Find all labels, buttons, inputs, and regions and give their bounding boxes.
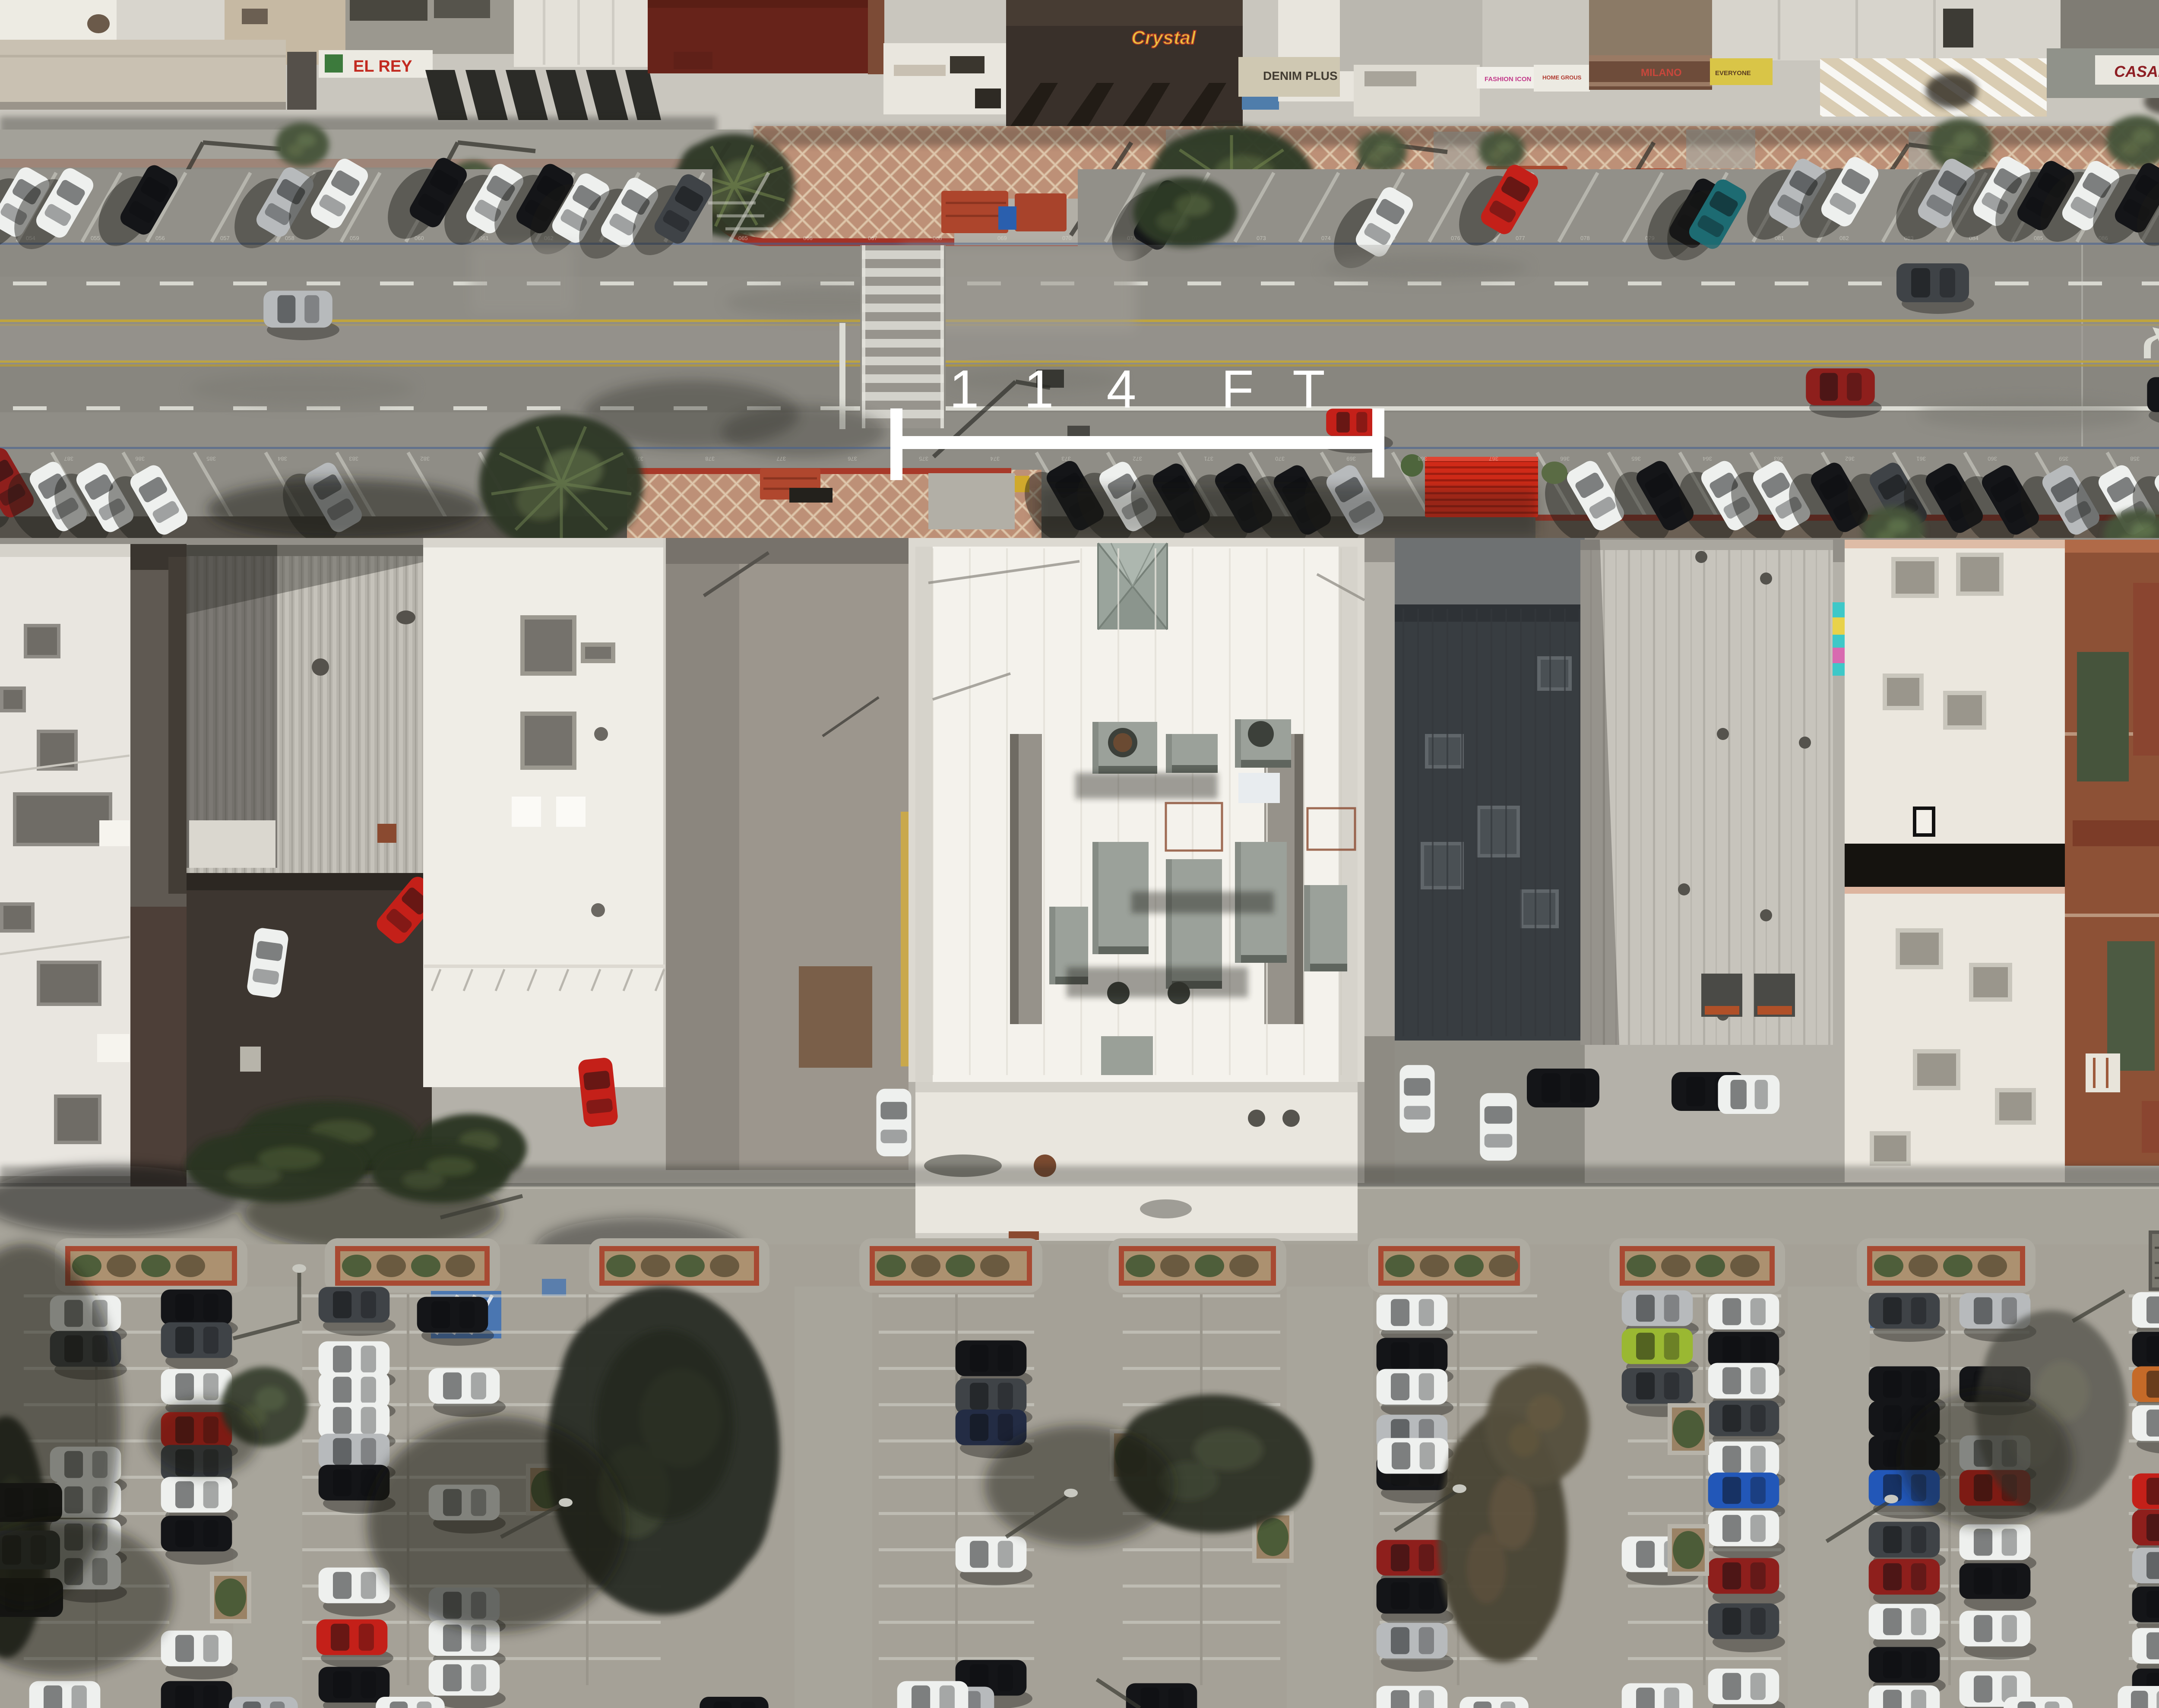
svg-text:DENIM PLUS: DENIM PLUS xyxy=(1263,69,1338,82)
svg-text:056: 056 xyxy=(155,235,165,241)
svg-text:058: 058 xyxy=(285,235,294,241)
svg-text:MILANO: MILANO xyxy=(1641,67,1682,79)
svg-text:F: F xyxy=(1221,360,1254,419)
svg-text:384: 384 xyxy=(278,455,287,462)
svg-text:372: 372 xyxy=(1133,455,1142,462)
svg-text:FASHION ICON: FASHION ICON xyxy=(1485,76,1531,83)
svg-text:073: 073 xyxy=(1257,235,1266,241)
svg-text:077: 077 xyxy=(1516,235,1525,241)
svg-text:EL REY: EL REY xyxy=(353,57,412,76)
svg-text:360: 360 xyxy=(1988,455,1997,462)
svg-text:067: 067 xyxy=(868,235,877,241)
svg-text:377: 377 xyxy=(776,455,786,462)
svg-text:387: 387 xyxy=(64,455,73,462)
svg-text:057: 057 xyxy=(220,235,230,241)
svg-text:085: 085 xyxy=(2034,235,2043,241)
svg-text:376: 376 xyxy=(848,455,857,462)
svg-text:078: 078 xyxy=(1580,235,1590,241)
svg-text:386: 386 xyxy=(135,455,145,462)
svg-text:365: 365 xyxy=(1631,455,1641,462)
svg-text:370: 370 xyxy=(1275,455,1285,462)
svg-text:059: 059 xyxy=(350,235,359,241)
svg-text:055: 055 xyxy=(91,235,100,241)
svg-text:T: T xyxy=(1292,360,1325,419)
svg-text:076: 076 xyxy=(1451,235,1460,241)
svg-text:358: 358 xyxy=(2130,455,2140,462)
svg-text:385: 385 xyxy=(206,455,216,462)
svg-text:CASANOVA: CASANOVA xyxy=(2114,63,2159,80)
svg-text:1: 1 xyxy=(1024,360,1054,419)
svg-text:HOME GROUS: HOME GROUS xyxy=(1542,74,1582,81)
svg-text:361: 361 xyxy=(1916,455,1926,462)
svg-text:371: 371 xyxy=(1204,455,1213,462)
svg-text:366: 366 xyxy=(1560,455,1570,462)
svg-text:074: 074 xyxy=(1321,235,1331,241)
svg-text:082: 082 xyxy=(1839,235,1849,241)
svg-text:EVERYONE: EVERYONE xyxy=(1715,70,1751,77)
svg-text:359: 359 xyxy=(2059,455,2068,462)
svg-text:367: 367 xyxy=(1489,455,1498,462)
svg-text:068: 068 xyxy=(933,235,942,241)
svg-text:382: 382 xyxy=(420,455,430,462)
svg-text:065: 065 xyxy=(738,235,748,241)
svg-text:070: 070 xyxy=(1062,235,1072,241)
svg-text:4: 4 xyxy=(1107,360,1136,419)
svg-text:363: 363 xyxy=(1774,455,1783,462)
svg-text:374: 374 xyxy=(990,455,1000,462)
svg-text:375: 375 xyxy=(919,455,928,462)
svg-text:Crystal: Crystal xyxy=(1131,27,1196,48)
svg-text:383: 383 xyxy=(349,455,358,462)
svg-text:378: 378 xyxy=(705,455,715,462)
svg-text:1: 1 xyxy=(950,360,979,419)
svg-text:066: 066 xyxy=(803,235,813,241)
svg-text:364: 364 xyxy=(1703,455,1712,462)
svg-text:369: 369 xyxy=(1346,455,1356,462)
svg-text:069: 069 xyxy=(997,235,1007,241)
svg-text:362: 362 xyxy=(1845,455,1855,462)
svg-text:368: 368 xyxy=(1418,455,1427,462)
